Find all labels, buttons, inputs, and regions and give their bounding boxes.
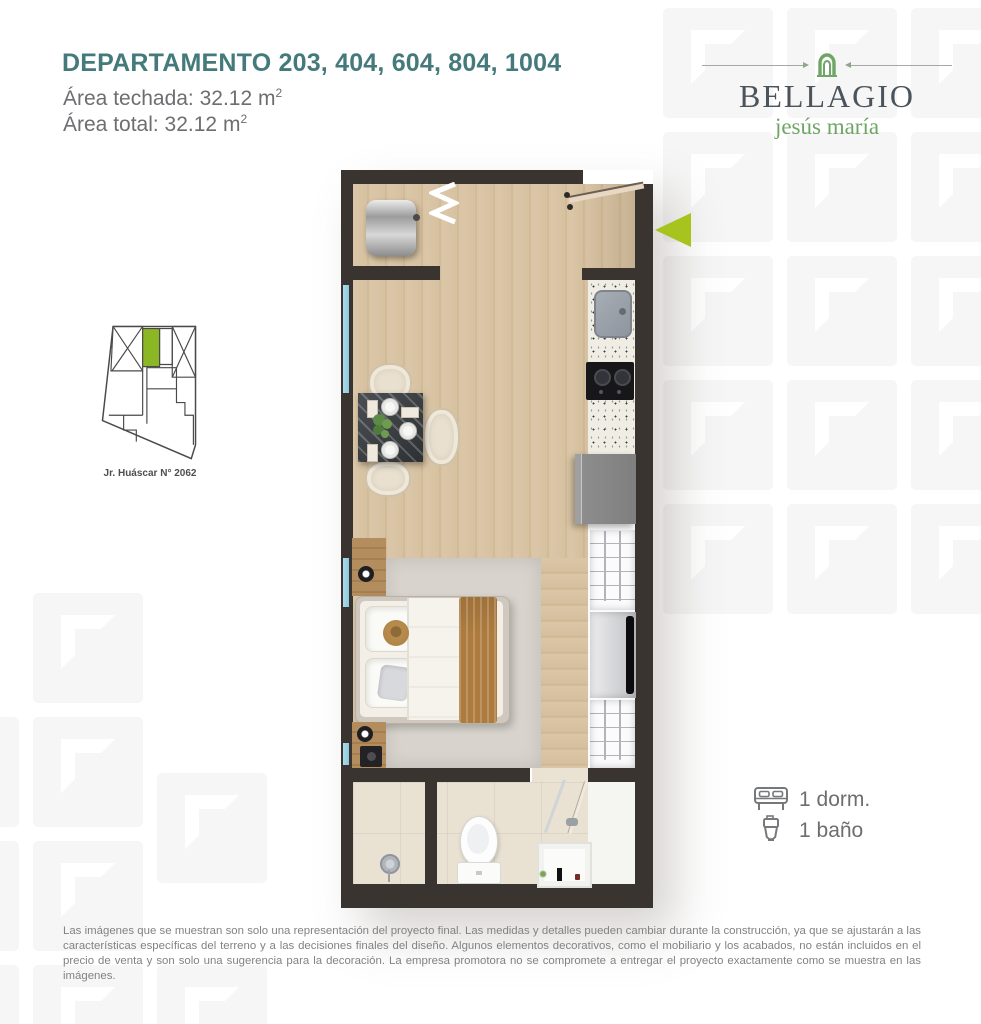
wall-bathroom-divider xyxy=(425,782,437,884)
logo-name: BELLAGIO xyxy=(702,78,952,114)
area-techada: Área techada: 32.12 m2 xyxy=(63,86,282,111)
pedestal-stem xyxy=(388,870,390,882)
shower-niche xyxy=(588,782,635,884)
plate xyxy=(381,441,399,459)
washing-machine xyxy=(366,200,416,256)
table-plant xyxy=(369,410,397,442)
logo-rule-left xyxy=(702,65,803,66)
toilet-bowl xyxy=(460,816,498,866)
toilet-icon xyxy=(753,815,789,846)
door-hinge xyxy=(567,204,573,210)
wall-kitchen-top xyxy=(582,268,653,280)
logo-rule-row xyxy=(702,52,952,78)
wall-laundry-alcove xyxy=(341,266,440,280)
door-hinge xyxy=(564,192,570,198)
cooktop-knob xyxy=(599,390,603,394)
napkin xyxy=(367,444,378,462)
hat xyxy=(383,620,409,646)
feature-bedrooms-label: 1 dorm. xyxy=(799,788,870,812)
speaker xyxy=(360,746,382,767)
area-total: Área total: 32.12 m2 xyxy=(63,112,247,137)
throw-blanket xyxy=(459,597,497,723)
arrow-right-icon xyxy=(803,62,809,68)
wall-speaker xyxy=(357,726,373,742)
floor-plan xyxy=(341,170,653,908)
page-title: DEPARTAMENTO 203, 404, 604, 804, 1004 xyxy=(62,49,561,78)
soap-bottle xyxy=(575,874,580,880)
shampoo-bottle xyxy=(557,868,562,881)
pedestal-sink xyxy=(380,854,400,874)
tv-unit xyxy=(590,612,636,698)
site-map-caption: Jr. Huáscar N° 2062 xyxy=(88,468,212,479)
wall-bathroom-top-right xyxy=(588,768,653,782)
napkin xyxy=(401,407,419,418)
kitchen-sink xyxy=(594,290,632,338)
page: DEPARTAMENTO 203, 404, 604, 804, 1004 Ár… xyxy=(0,0,981,1024)
site-map xyxy=(96,318,202,466)
refrigerator xyxy=(575,454,636,524)
logo-tagline: jesús maría xyxy=(702,114,952,140)
disclaimer-text: Las imágenes que se muestran son solo un… xyxy=(63,924,921,984)
bath-plant xyxy=(539,870,547,878)
window-strip xyxy=(343,558,349,607)
wall-bathroom-top-left xyxy=(341,768,530,782)
bellagio-logo: BELLAGIO jesús maría xyxy=(702,52,952,140)
duvet xyxy=(407,598,467,720)
bathroom-door-threshold xyxy=(530,768,592,782)
burner xyxy=(614,369,631,386)
wall-top xyxy=(341,170,583,184)
shower-tray xyxy=(537,842,592,888)
plate xyxy=(399,422,417,440)
closet-shelves-upper xyxy=(590,530,635,610)
flush-button xyxy=(476,871,482,875)
window-strip xyxy=(343,285,349,393)
vent-zigzag-icon xyxy=(429,182,459,226)
dining-chair xyxy=(423,408,460,466)
cooktop xyxy=(586,362,634,400)
sink-faucet xyxy=(619,308,626,315)
wall-right xyxy=(635,184,653,908)
speaker-cone xyxy=(367,752,376,761)
wall-speaker xyxy=(358,566,374,582)
dining-chair xyxy=(365,460,411,497)
entry-arrow-left-icon xyxy=(655,213,691,247)
bed-icon xyxy=(753,786,789,813)
wall-bottom xyxy=(341,884,653,908)
washer-knob xyxy=(413,214,420,221)
feature-bathrooms-label: 1 baño xyxy=(799,819,863,843)
toilet-tank xyxy=(457,862,501,884)
feature-bathrooms: 1 baño xyxy=(753,815,870,846)
window-strip xyxy=(343,743,349,765)
closet-shelves-lower xyxy=(590,700,635,768)
arch-icon xyxy=(814,53,840,77)
feature-bedrooms: 1 dorm. xyxy=(753,784,870,815)
toilet-seat xyxy=(467,824,489,854)
burner xyxy=(594,369,611,386)
shower-head xyxy=(566,818,578,826)
tv xyxy=(626,616,634,694)
feature-list: 1 dorm. 1 baño xyxy=(753,784,870,846)
logo-rule-right xyxy=(851,65,952,66)
cooktop-knob xyxy=(617,390,621,394)
site-map-highlight-unit xyxy=(143,329,160,367)
